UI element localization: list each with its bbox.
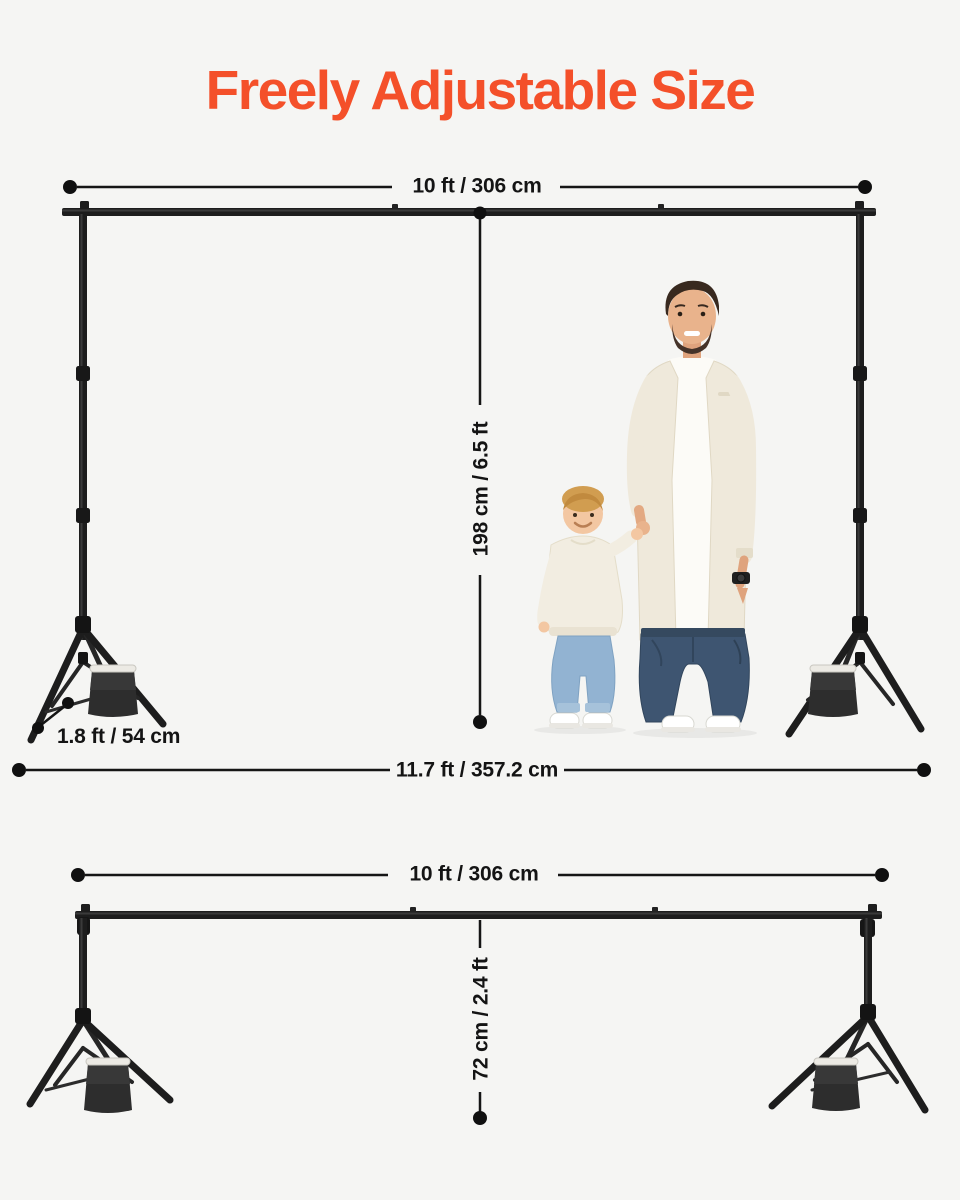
crossbar-min [75, 904, 882, 919]
right-tripod-full [789, 616, 921, 734]
left-sandbag-full [88, 665, 138, 717]
child-shoes [549, 713, 613, 728]
left-pole-full [76, 214, 90, 640]
height-label-full: 198 cm / 6.5 ft [471, 422, 492, 557]
right-sandbag-min [812, 1058, 860, 1111]
man-watch [732, 572, 750, 584]
man-figure [635, 281, 753, 732]
footprint-label: 11.7 ft / 357.2 cm [396, 760, 558, 781]
child-figure [539, 486, 644, 728]
width-label-full: 10 ft / 306 cm [412, 176, 541, 197]
left-sandbag-min [84, 1058, 132, 1113]
width-label-min: 10 ft / 306 cm [409, 864, 538, 885]
model-photo [534, 281, 757, 738]
right-sandbag-full [808, 665, 858, 717]
product-size-infographic: Freely Adjustable Size [0, 0, 960, 1200]
right-pole-full [853, 214, 867, 640]
height-label-min: 72 cm / 2.4 ft [471, 957, 492, 1080]
leg-spread-label: 1.8 ft / 54 cm [57, 726, 180, 747]
crossbar-full [62, 201, 876, 216]
